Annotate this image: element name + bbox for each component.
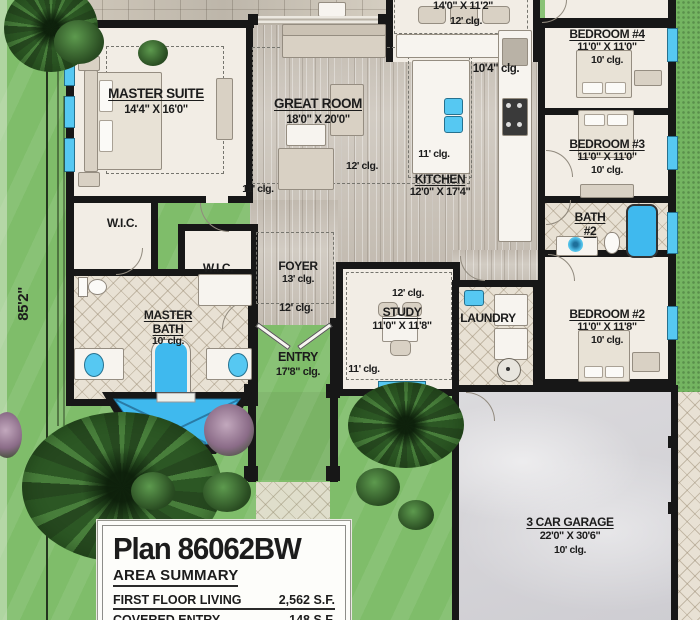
study-hall-ceiling: 11' clg. (336, 364, 392, 375)
bedroom4-ceiling: 10' clg. (545, 55, 669, 66)
mbath-shower (198, 274, 252, 306)
title-block-inner: Plan 86062BW AREA SUMMARY FIRST FLOOR LI… (102, 525, 346, 620)
wic-right-name: W.I.C. (192, 262, 244, 275)
area-row-value: 148 S.F. (289, 613, 335, 620)
kitchen-vault-ceiling: 10'4" clg. (460, 63, 532, 75)
dryer (494, 328, 528, 360)
window-master-2 (64, 96, 75, 128)
bed2-pillow-2 (605, 366, 624, 378)
entry-door-leaf-left (256, 322, 291, 350)
bed2-dresser (632, 352, 660, 372)
bed3-dresser (580, 184, 634, 198)
laundry-sink (464, 290, 484, 306)
palm-trunk-2 (63, 96, 65, 426)
dining-dims: 14'0" X 11'2" (398, 1, 528, 13)
area-row-label: COVERED ENTRY (113, 613, 220, 620)
foyer-name: FOYER (266, 260, 330, 273)
plan-title: Plan 86062BW (113, 533, 324, 564)
wall-master-bottom-a (66, 196, 206, 203)
bedroom3-dims: 11'0" X 11'0" (545, 152, 669, 164)
mbath-sink-left (84, 353, 104, 377)
study-name: STUDY (360, 306, 444, 319)
bedroom2-ceiling: 10' clg. (542, 335, 672, 346)
bed3-pillow-1 (584, 114, 605, 126)
entry-ceiling: 17'8" clg. (254, 367, 342, 379)
master-bath-ceiling: 10' clg. (128, 336, 208, 347)
window-bath2 (667, 212, 678, 254)
mbath-toilet (88, 279, 107, 295)
mbath-sink-right (228, 353, 248, 377)
mbath-toilet-tank (78, 277, 88, 297)
wall-oven (502, 38, 528, 66)
coffee-table (286, 124, 326, 146)
kitchen-ceiling: 11' clg. (406, 149, 462, 160)
right-grass-strip (676, 0, 700, 392)
great-room-ceiling: 12' clg. (334, 161, 390, 172)
bath2-tub (626, 204, 658, 258)
driveway-tile (676, 392, 700, 620)
master-bed-pillow-2 (99, 120, 113, 152)
bath2-name-line1: BATH (560, 211, 620, 224)
study-chair-3 (390, 340, 411, 356)
covered-entry-shade (256, 392, 330, 480)
bush-courtyard-2 (398, 500, 434, 530)
foyer-ceiling: 13' clg. (266, 274, 330, 285)
entry-door-leaf-right (297, 322, 332, 350)
garage-dims: 22'0" X 30'6" (490, 531, 650, 543)
island-sink-1 (444, 98, 463, 115)
bath2-sink (568, 237, 583, 252)
floor-plan-scene: 85'2" 14'0" X 11'2" 12' clg. MASTER SUIT… (0, 0, 700, 620)
dining-ceiling: 12' clg. (424, 16, 508, 27)
stove-burner-1 (506, 103, 511, 108)
window-master-3 (64, 138, 75, 172)
room-wic-left (66, 196, 158, 276)
master-suite-dims: 14'4" X 16'0" (76, 104, 236, 116)
island-sink-2 (444, 116, 463, 133)
bedroom3-ceiling: 10' clg. (545, 165, 669, 176)
bush-patio-edge (138, 40, 168, 66)
bed3-pillow-2 (607, 114, 628, 126)
outdoor-grill (318, 2, 346, 17)
slider-cap-left (248, 14, 258, 25)
bush-below-bay-2 (203, 472, 251, 512)
bush-top-left (54, 20, 104, 64)
sofa-large-back (282, 24, 386, 36)
master-bath-name-line2: BATH (128, 323, 208, 336)
palm-courtyard (348, 382, 464, 468)
foyer-below-ceiling: 12' clg. (260, 303, 332, 315)
bedroom3-name: BEDROOM #3 (545, 138, 669, 151)
garage-door-jamb-upper (668, 436, 678, 448)
bed4-pillow-1 (582, 82, 603, 94)
garage-name: 3 CAR GARAGE (490, 516, 650, 529)
bush-courtyard-1 (356, 468, 400, 506)
wall-master-bottom-b (228, 196, 253, 203)
master-bed-headboard (84, 70, 98, 172)
bedroom2-dims: 11'0" X 11'8" (542, 322, 672, 334)
left-edge-highlight (0, 0, 7, 620)
great-room-hall-ceiling: 11' clg. (230, 184, 286, 195)
bed4-pillow-2 (605, 82, 626, 94)
wall-entry-right (330, 318, 338, 482)
great-room-dims: 18'0" X 20'0" (243, 114, 393, 126)
kitchen-dims: 12'0" X 17'4" (400, 187, 480, 199)
stove-burner-4 (517, 122, 522, 127)
lot-depth-dimension: 85'2" (16, 274, 32, 334)
bedroom4-name: BEDROOM #4 (545, 28, 669, 41)
loveseat (278, 148, 334, 190)
area-row-covered-entry: COVERED ENTRY 148 S.F. (113, 610, 335, 620)
bedroom4-dims: 11'0" X 11'0" (545, 42, 669, 54)
area-row-value: 2,562 S.F. (279, 593, 335, 607)
area-summary-heading: AREA SUMMARY (113, 567, 238, 587)
stove-burner-2 (517, 103, 522, 108)
bedroom2-name: BEDROOM #2 (542, 308, 672, 321)
bed4-dresser (634, 70, 662, 86)
title-block-card: Plan 86062BW AREA SUMMARY FIRST FLOOR LI… (97, 520, 351, 620)
master-nightstand-bottom (78, 172, 100, 187)
area-row-label: FIRST FLOOR LIVING (113, 593, 241, 607)
entry-name: ENTRY (258, 351, 338, 364)
laundry-name: LAUNDRY (450, 312, 526, 325)
bath2-name-line2: #2 (560, 225, 620, 238)
master-suite-name: MASTER SUITE (76, 87, 236, 101)
study-dims: 11'0" X 11'8" (358, 321, 446, 333)
bay-step (157, 393, 195, 402)
great-room-name: GREAT ROOM (243, 97, 393, 111)
garage-door-jamb-lower (668, 502, 678, 514)
master-bath-name-line1: MASTER (128, 309, 208, 322)
stove-burner-3 (506, 122, 511, 127)
study-ceiling: 12' clg. (380, 288, 436, 299)
bed2-pillow-1 (584, 366, 603, 378)
palm-trunk-1 (57, 70, 59, 426)
area-row-first-floor: FIRST FLOOR LIVING 2,562 S.F. (113, 590, 335, 610)
bush-purple-left-edge (0, 412, 22, 458)
water-heater-dot (506, 367, 510, 371)
bush-below-bay-1 (131, 472, 175, 510)
kitchen-name: KITCHEN (405, 173, 475, 186)
garage-ceiling: 10' clg. (490, 545, 650, 556)
bush-purple-bay-right (204, 404, 254, 456)
wic-left-name: W.I.C. (96, 217, 148, 230)
